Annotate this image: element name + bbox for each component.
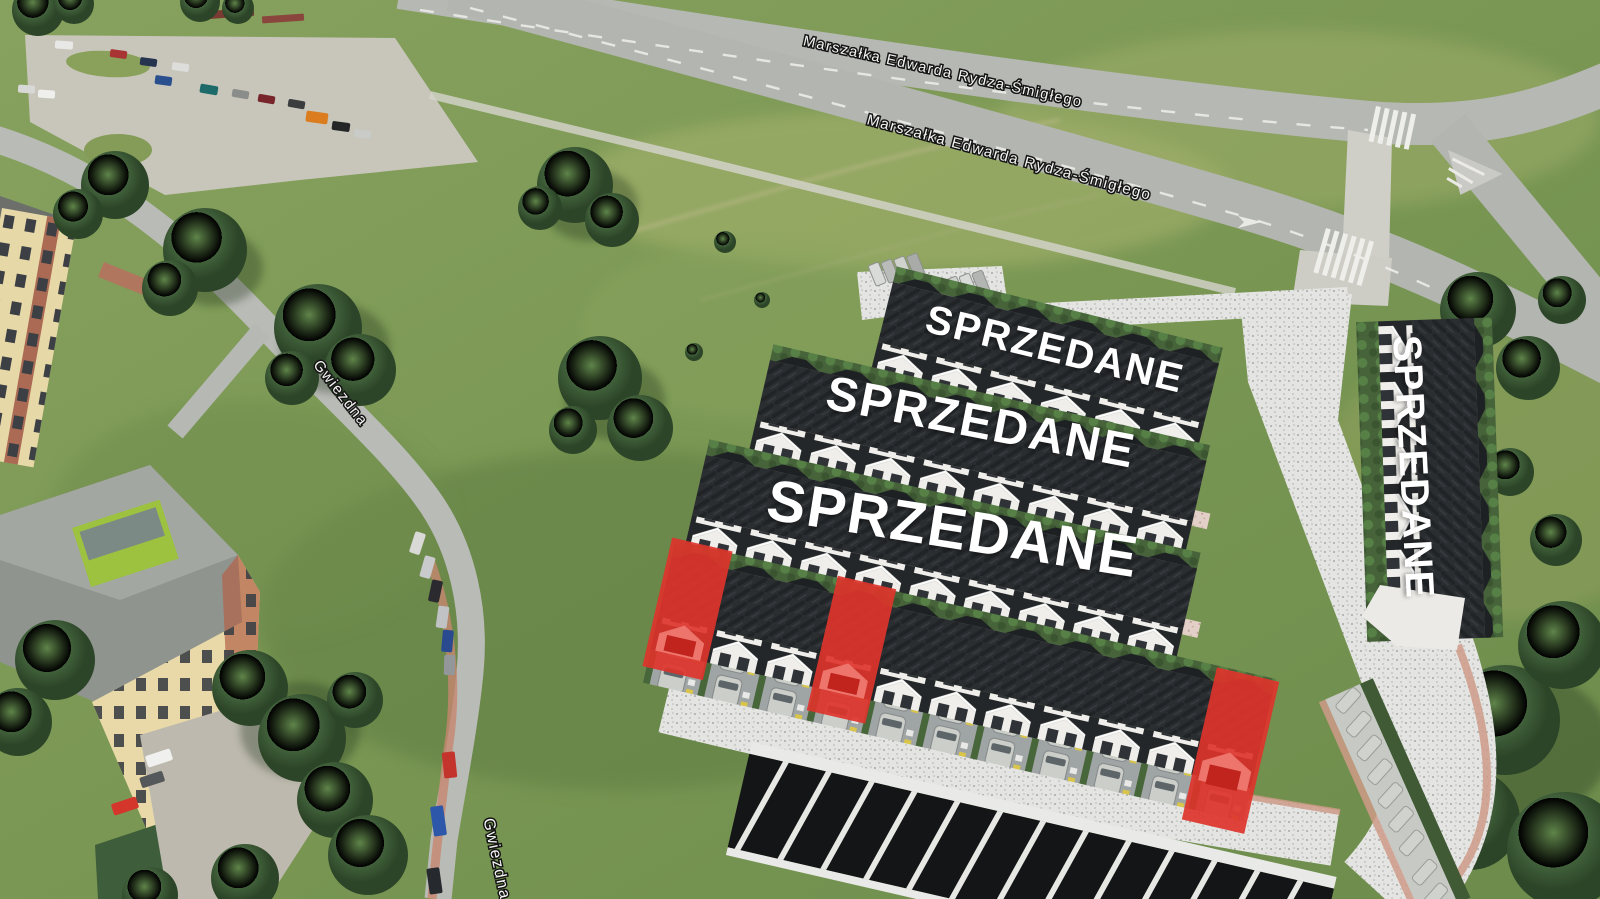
map-canvas: Marszałka Edwarda Rydza-Śmigłego Marszał… <box>0 0 1600 899</box>
aerial-map-view: Marszałka Edwarda Rydza-Śmigłego Marszał… <box>0 0 1600 899</box>
